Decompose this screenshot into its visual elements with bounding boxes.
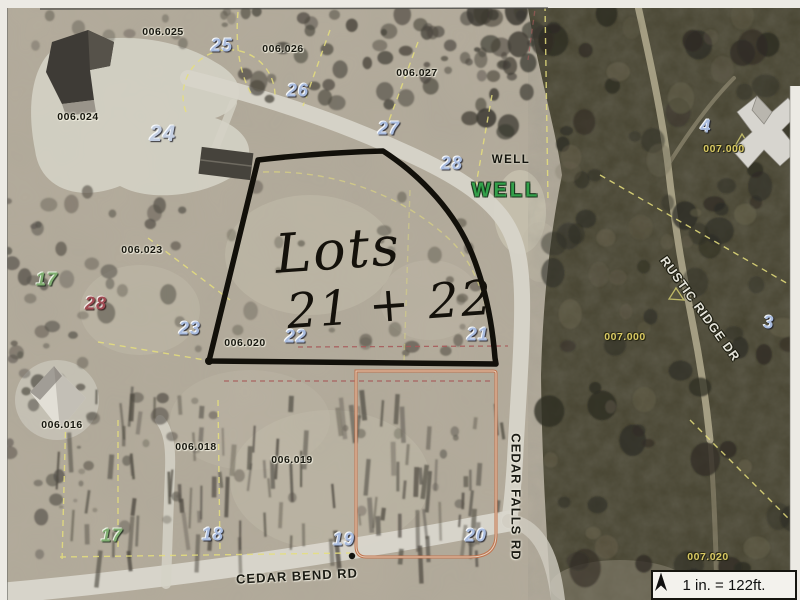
parcel-006-026: 006.026 [262,43,303,55]
road-label-cedar-bend: CEDAR BEND RD [236,565,359,586]
lot-number-21: 21 [467,325,489,346]
parcel-006-016: 006.016 [41,419,82,431]
lot-number-25: 25 [211,36,233,57]
well-label-large: WELL [472,180,541,203]
well-label-small: WELL [492,154,531,166]
road-label-cedar-falls: CEDAR FALLS RD [509,433,524,560]
parcel-006-025: 006.025 [142,26,183,38]
lot-number-23: 23 [179,319,201,340]
plat-map-page: 252627282443232221172817181920006.025006… [0,0,800,600]
parcel-007-000-north: 007.000 [703,143,744,155]
handwritten-lots-word: Lots [273,214,403,286]
parcel-006-019: 006.019 [271,454,312,466]
lot-number-28-north: 28 [441,154,463,175]
lot-number-26: 26 [287,81,309,102]
lot-number-19: 19 [333,530,355,551]
parcel-006-020: 006.020 [224,337,265,349]
lot-number-4: 4 [700,117,711,138]
lot-number-18: 18 [202,525,224,546]
lot-number-24: 24 [150,121,176,147]
lot-number-3: 3 [763,313,774,334]
lot-number-17-west: 17 [36,270,58,291]
parcel-006-018: 006.018 [175,441,216,453]
lot-number-27: 27 [378,119,400,140]
parcel-006-027: 006.027 [396,67,437,79]
parcel-007-000-west: 007.000 [604,331,645,343]
parcel-006-023: 006.023 [121,244,162,256]
road-label-rustic-ridge: RUSTIC RIDGE DR [657,254,742,364]
lot-number-17-south: 17 [101,526,123,547]
scale-box: 1 in. = 122ft. [651,570,797,600]
lot-number-28-west: 28 [85,294,107,315]
parcel-007-020: 007.020 [687,551,728,563]
parcel-006-024: 006.024 [57,111,98,123]
lot-number-20: 20 [465,526,487,547]
scale-text: 1 in. = 122ft. [683,577,766,594]
north-arrow-icon [653,572,669,592]
